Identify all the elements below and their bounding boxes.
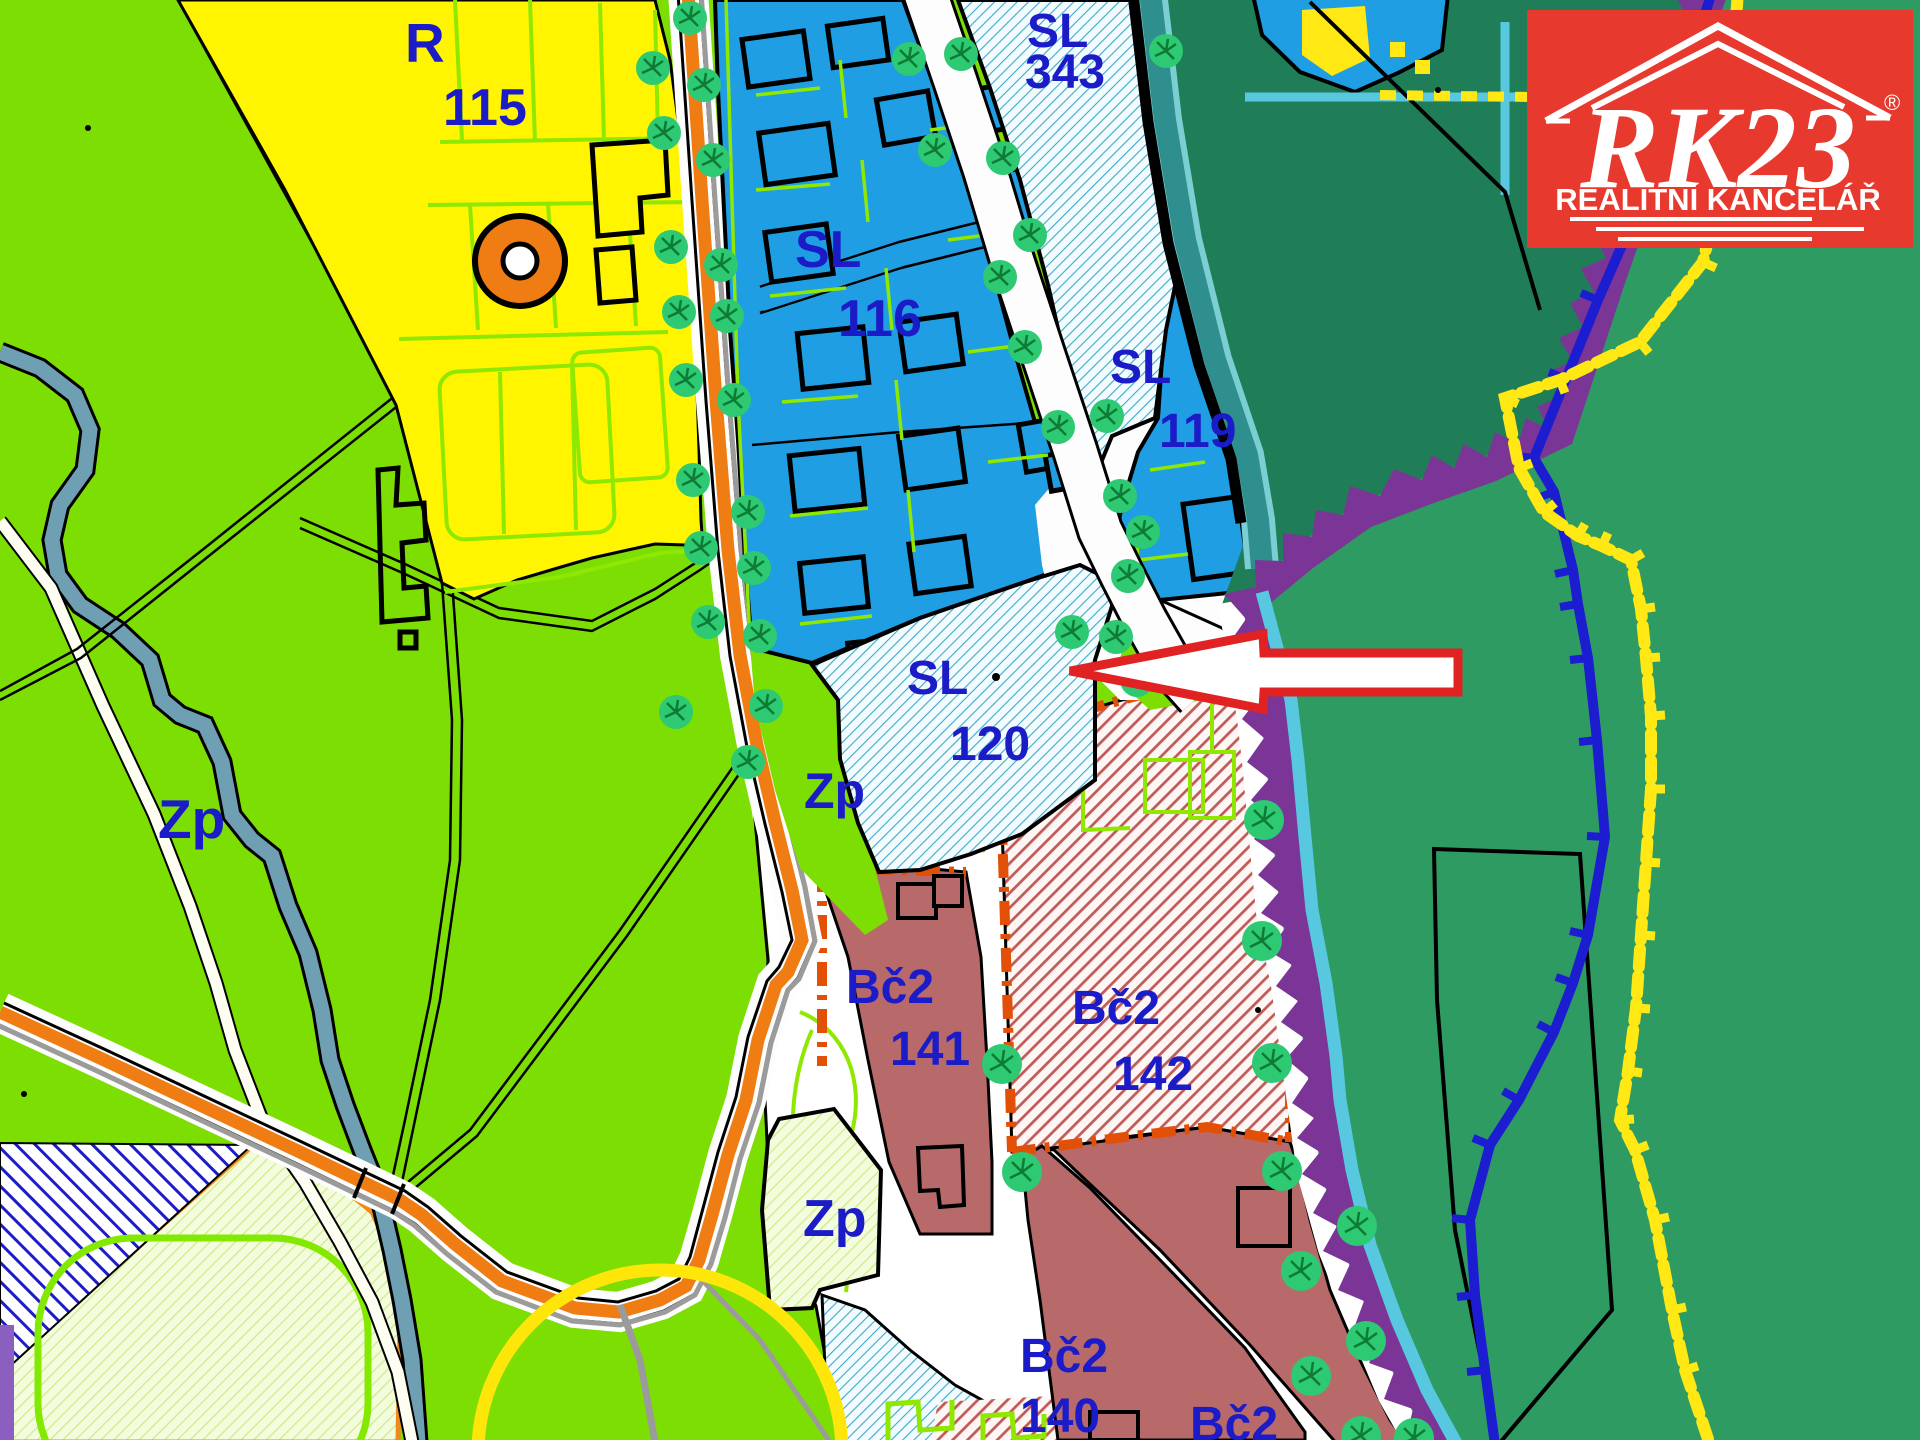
svg-text:Bč2: Bč2 bbox=[1072, 982, 1160, 1035]
svg-text:119: 119 bbox=[1159, 405, 1236, 458]
svg-text:SL: SL bbox=[1110, 341, 1171, 394]
svg-text:Zp: Zp bbox=[803, 1190, 867, 1248]
svg-text:R: R bbox=[405, 12, 445, 74]
svg-text:SL: SL bbox=[795, 221, 861, 279]
svg-text:120: 120 bbox=[950, 718, 1030, 771]
svg-text:115: 115 bbox=[443, 79, 527, 137]
svg-text:®: ® bbox=[1884, 90, 1900, 115]
svg-text:140: 140 bbox=[1020, 1390, 1100, 1440]
svg-text:116: 116 bbox=[838, 290, 922, 348]
svg-text:343: 343 bbox=[1025, 46, 1105, 99]
svg-text:Bč2: Bč2 bbox=[1020, 1330, 1108, 1383]
svg-text:REALITNÍ KANCELÁŘ: REALITNÍ KANCELÁŘ bbox=[1555, 181, 1881, 217]
svg-text:141: 141 bbox=[890, 1023, 970, 1076]
svg-text:Zp: Zp bbox=[158, 788, 225, 850]
svg-text:SL: SL bbox=[907, 652, 968, 705]
svg-text:Zp: Zp bbox=[804, 763, 865, 819]
svg-text:Bč2: Bč2 bbox=[1190, 1398, 1278, 1440]
svg-text:142: 142 bbox=[1113, 1048, 1193, 1101]
svg-text:Bč2: Bč2 bbox=[846, 961, 934, 1014]
